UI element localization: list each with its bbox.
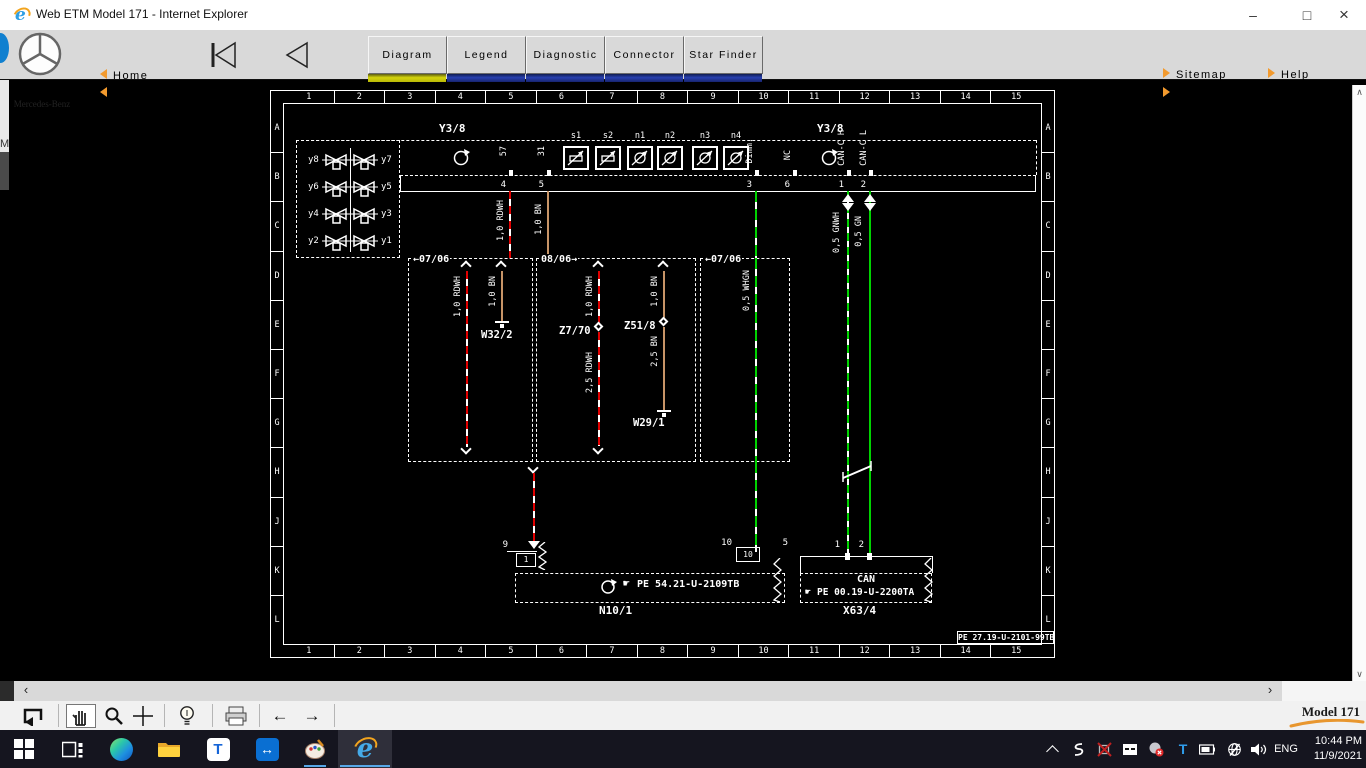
hand-ref-icon: ☛: [622, 578, 631, 589]
wire-label: 1,0 BN: [650, 276, 660, 307]
background-window-sliver: M: [0, 80, 9, 152]
wire-gn: [869, 191, 871, 553]
home-link[interactable]: Home: [100, 69, 148, 82]
grid-row-label: J: [1042, 498, 1054, 547]
valve: y4: [308, 200, 350, 227]
tray-network-globe-icon[interactable]: [1226, 741, 1242, 757]
grid-col-label: 11: [789, 91, 840, 103]
splice-label: Z51/8: [623, 321, 657, 332]
wire-label: 2,5 RDWH: [585, 352, 595, 393]
grid-col-label: 2: [335, 645, 386, 657]
motor-icon: [820, 148, 838, 166]
wire-whgn: [755, 258, 757, 462]
date-code: 08/06→: [540, 254, 578, 265]
background-window-icon: [0, 33, 9, 63]
pin-box: 1: [516, 553, 536, 567]
tray-expand-chevron[interactable]: [1044, 741, 1060, 757]
grid-col-label: 8: [638, 91, 689, 103]
wire-label: 1,0 RDWH: [496, 200, 506, 241]
break-zigzag: [773, 558, 783, 602]
wire-bn: [663, 271, 665, 318]
wire-label: 1,0 BN: [488, 276, 498, 307]
shield-symbol: [842, 194, 854, 202]
option-box-2: [536, 258, 696, 462]
grid-col-label: 12: [840, 91, 891, 103]
connector-strip: [400, 175, 401, 191]
wire-rdwh: [466, 271, 468, 447]
break-zigzag: [538, 542, 548, 570]
pin-number: 2: [852, 540, 864, 550]
model-label: Model 171: [1280, 704, 1360, 720]
cell-s2: s2: [595, 131, 621, 170]
mercedes-logo-icon: [18, 32, 62, 76]
splice-label: Z7/70: [558, 326, 592, 337]
component-label: Y3/8: [438, 123, 467, 134]
grid-row-label: K: [271, 547, 283, 596]
wire-bn: [547, 191, 549, 258]
abbreviation-link[interactable]: Abbreviation: [1163, 87, 1255, 100]
help-arrow-icon: [1268, 68, 1275, 78]
grid-row-label: H: [1042, 448, 1054, 497]
go-first-button[interactable]: [205, 40, 241, 70]
crosshair-tool[interactable]: [128, 704, 158, 728]
tray-t-app-icon[interactable]: T: [1175, 741, 1191, 757]
wire-label: 1,0 RDWH: [585, 276, 595, 317]
grid-col-label: 13: [890, 645, 941, 657]
connector-strip: [400, 191, 1036, 192]
app-t-icon[interactable]: T: [206, 737, 230, 761]
grid-row-label: B: [1042, 153, 1054, 202]
app-toolbar: Mercedes-Benz Home Back Diagram Legend D…: [0, 30, 1366, 80]
grid-col-label: 5: [486, 645, 537, 657]
wire-bn: [501, 271, 503, 321]
pe-reference[interactable]: PE 00.19-U-2200TA: [816, 587, 915, 598]
internet-explorer-icon: e: [13, 5, 33, 25]
internet-explorer-taskbar-button[interactable]: e: [338, 730, 392, 768]
grid-col-label: 13: [890, 91, 941, 103]
shield-symbol: [842, 203, 854, 211]
wire-rdwh: [598, 332, 600, 446]
valve: y3: [350, 200, 404, 227]
component-border: [1036, 140, 1037, 175]
help-link[interactable]: Help: [1268, 68, 1310, 81]
cell-n1: n1: [627, 131, 653, 170]
grid-row-label: H: [271, 448, 283, 497]
language-indicator[interactable]: ENG: [1272, 741, 1300, 757]
pin-number: 2: [854, 180, 866, 190]
valve: y2: [308, 227, 350, 254]
grid-col-label: 15: [991, 91, 1041, 103]
tray-dashes-icon[interactable]: [1122, 741, 1138, 757]
reset-view-button[interactable]: [14, 704, 50, 728]
wire-whgn: [755, 191, 757, 258]
grid-col-label: 8: [638, 645, 689, 657]
back-link[interactable]: Back: [100, 87, 143, 100]
viewer-toolbar: ← → Model 171: [0, 701, 1366, 730]
brand-label: Mercedes-Benz: [2, 99, 82, 109]
scroll-left-button[interactable]: ‹: [14, 681, 38, 701]
file-explorer-icon[interactable]: [157, 737, 181, 761]
grid-col-label: 9: [688, 91, 739, 103]
pin-number: 5: [532, 180, 544, 190]
scroll-up-button[interactable]: ∧: [1353, 85, 1366, 99]
taskbar: T ↔ e T ENG 10:44 PM 11/9/2021: [0, 730, 1366, 768]
pin-number: 1: [828, 540, 840, 550]
pin-signal: 57: [499, 146, 509, 156]
abbreviation-arrow-icon: [1163, 87, 1170, 97]
connector-strip: [1035, 175, 1036, 191]
valve-column-right: y7y5y3y1: [350, 146, 404, 256]
pin-signal: Dimm.: [745, 138, 755, 164]
bus-label: CAN: [800, 574, 932, 585]
pin-signal: CAN-C H: [837, 130, 847, 166]
ground-label: W29/1: [632, 418, 666, 429]
valve-column-left: y8y6y4y2: [296, 146, 350, 256]
grid-col-label: 6: [537, 645, 588, 657]
teamviewer-icon[interactable]: ↔: [255, 737, 279, 761]
grid-col-label: 11: [789, 645, 840, 657]
grid-col-label: 6: [537, 91, 588, 103]
go-back-button[interactable]: [278, 40, 314, 70]
back-arrow-icon: [100, 87, 107, 97]
grid-col-label: 12: [840, 645, 891, 657]
date-code: ←07/06: [704, 254, 742, 265]
tray-disabled-device-icon[interactable]: [1096, 741, 1112, 757]
grid-row-label: F: [1042, 350, 1054, 399]
title-bar: e Web ETM Model 171 - Internet Explorer …: [0, 0, 1366, 30]
wire-label: 0,5 GN: [854, 216, 864, 247]
grid-col-label: 15: [991, 645, 1041, 657]
sitemap-link[interactable]: Sitemap: [1163, 68, 1227, 81]
grid-row-label: A: [271, 104, 283, 153]
grid-col-label: 4: [436, 645, 487, 657]
pin-number: 10: [720, 538, 732, 548]
grid-col-label: 14: [941, 91, 992, 103]
wire-rdwh: [509, 191, 511, 258]
task-view-button[interactable]: [60, 737, 84, 761]
edge-icon[interactable]: [109, 737, 133, 761]
grid-col-label: 3: [385, 645, 436, 657]
grid-row-label: D: [1042, 252, 1054, 301]
pin-number: 6: [778, 180, 790, 190]
tray-battery-icon[interactable]: [1199, 741, 1215, 757]
grid-columns-top: 123456789101112131415: [284, 91, 1041, 103]
grid-row-label: D: [271, 252, 283, 301]
grid-col-label: 10: [739, 91, 790, 103]
grid-row-label: E: [1042, 301, 1054, 350]
pin-number: 1: [832, 180, 844, 190]
grid-col-label: 14: [941, 645, 992, 657]
wiring-diagram-canvas[interactable]: 123456789101112131415 123456789101112131…: [270, 90, 1055, 658]
hand-ref-icon: ☛: [804, 587, 812, 598]
window-title: Web ETM Model 171 - Internet Explorer: [36, 7, 248, 21]
grid-row-label: E: [271, 301, 283, 350]
wire-bn: [663, 327, 665, 410]
page-back-button[interactable]: ←: [266, 704, 294, 728]
page-forward-button[interactable]: →: [298, 704, 326, 728]
grid-row-label: C: [1042, 202, 1054, 251]
grid-row-label: L: [271, 596, 283, 644]
shield-symbol: [864, 203, 876, 211]
wire-label: 1,0 BN: [534, 204, 544, 235]
valve: y7: [350, 146, 404, 173]
vertical-scrollbar[interactable]: ∧ ∨: [1352, 85, 1366, 681]
grid-row-label: K: [1042, 547, 1054, 596]
wire-label: 0,5 WHGN: [742, 270, 752, 311]
paint-icon[interactable]: [303, 737, 327, 761]
grid-col-label: 3: [385, 91, 436, 103]
grid-col-label: 1: [284, 91, 335, 103]
pin-number: 4: [494, 180, 506, 190]
grid-row-label: G: [1042, 399, 1054, 448]
grid-row-label: B: [271, 153, 283, 202]
cell-n3: n3: [692, 131, 718, 170]
screen: e Web ETM Model 171 - Internet Explorer …: [0, 0, 1366, 768]
component-name: X63/4: [842, 605, 877, 616]
pin-number: 5: [776, 538, 788, 548]
grid-row-label: C: [271, 202, 283, 251]
zoom-tool[interactable]: [100, 704, 128, 728]
tray-date: 11/9/2021: [1298, 749, 1362, 764]
pin-signal: NC: [783, 150, 793, 160]
wire-label: 1,0 RDWH: [453, 276, 463, 317]
pin-box: 10: [736, 547, 760, 562]
wire-gnwh: [847, 191, 849, 553]
home-arrow-icon: [100, 69, 107, 79]
motor-icon: [600, 578, 617, 595]
grid-col-label: 9: [688, 645, 739, 657]
grid-col-label: 5: [486, 91, 537, 103]
minimize-button[interactable]: –: [1231, 0, 1275, 30]
tray-alert-app-icon[interactable]: [1148, 741, 1164, 757]
grid-col-label: 7: [587, 645, 638, 657]
twisted-pair-icon: [840, 458, 874, 482]
pan-hand-tool[interactable]: [66, 704, 96, 728]
scroll-down-button[interactable]: ∨: [1353, 667, 1366, 681]
valve: y8: [308, 146, 350, 173]
option-box-1: [408, 258, 533, 462]
valve: y1: [350, 227, 404, 254]
sitemap-arrow-icon: [1163, 68, 1170, 78]
background-window-sliver-dark: [0, 152, 9, 190]
cell-s1: s1: [563, 131, 589, 170]
pin-signal: 31: [537, 146, 547, 156]
valve: y6: [308, 173, 350, 200]
pin-number: 3: [740, 180, 752, 190]
tray-volume-icon[interactable]: [1251, 741, 1267, 757]
model-swoosh-icon: [1288, 719, 1366, 728]
horizontal-scrollbar[interactable]: ‹ ›: [0, 681, 1366, 701]
pe-reference[interactable]: PE 54.21-U-2109TB: [636, 579, 740, 590]
grid-row-label: A: [1042, 104, 1054, 153]
grid-row-label: F: [271, 350, 283, 399]
grid-col-label: 10: [739, 645, 790, 657]
grid-row-label: J: [271, 498, 283, 547]
grid-rows-left: ABCDEFGHJKL: [271, 104, 283, 644]
ground-label: W32/2: [480, 330, 514, 341]
taskbar-clock[interactable]: 10:44 PM 11/9/2021: [1298, 734, 1362, 764]
grid-col-label: 2: [335, 91, 386, 103]
highlight-bulb-button[interactable]: [172, 704, 202, 728]
ground-symbol: [495, 321, 509, 323]
ground-symbol: [657, 410, 671, 412]
cell-n2: n2: [657, 131, 683, 170]
start-button[interactable]: [12, 737, 36, 761]
grid-rows-right: ABCDEFGHJKL: [1042, 104, 1054, 644]
component-name: N10/1: [598, 605, 633, 616]
wire-rdwh: [598, 271, 600, 323]
wire-label: 2,5 BN: [650, 336, 660, 367]
sheet-reference: PE 27.19-U-2101-99TB: [957, 631, 1054, 644]
pin-signal: CAN-C L: [859, 130, 869, 166]
wire-whgn: [755, 462, 757, 552]
valve: y5: [350, 173, 404, 200]
grid-col-label: 1: [284, 645, 335, 657]
grid-col-label: 7: [587, 91, 638, 103]
pin-number: 9: [496, 540, 508, 550]
shield-symbol: [864, 194, 876, 202]
hscroll-track[interactable]: [14, 681, 1282, 701]
tray-app-icon[interactable]: [1070, 741, 1086, 757]
break-zigzag: [924, 558, 934, 602]
grid-columns-bottom: 123456789101112131415: [284, 645, 1041, 657]
motor-icon: [452, 148, 470, 166]
component-border: [400, 175, 1036, 176]
date-code: ←07/06: [412, 254, 450, 265]
wire-rdwh: [533, 473, 535, 541]
wire-label: 0,5 GNWH: [832, 212, 842, 253]
tray-time: 10:44 PM: [1298, 734, 1362, 749]
print-button[interactable]: [220, 704, 252, 728]
close-button[interactable]: ×: [1322, 0, 1366, 30]
grid-row-label: G: [271, 399, 283, 448]
scroll-right-button[interactable]: ›: [1258, 681, 1282, 701]
grid-col-label: 4: [436, 91, 487, 103]
